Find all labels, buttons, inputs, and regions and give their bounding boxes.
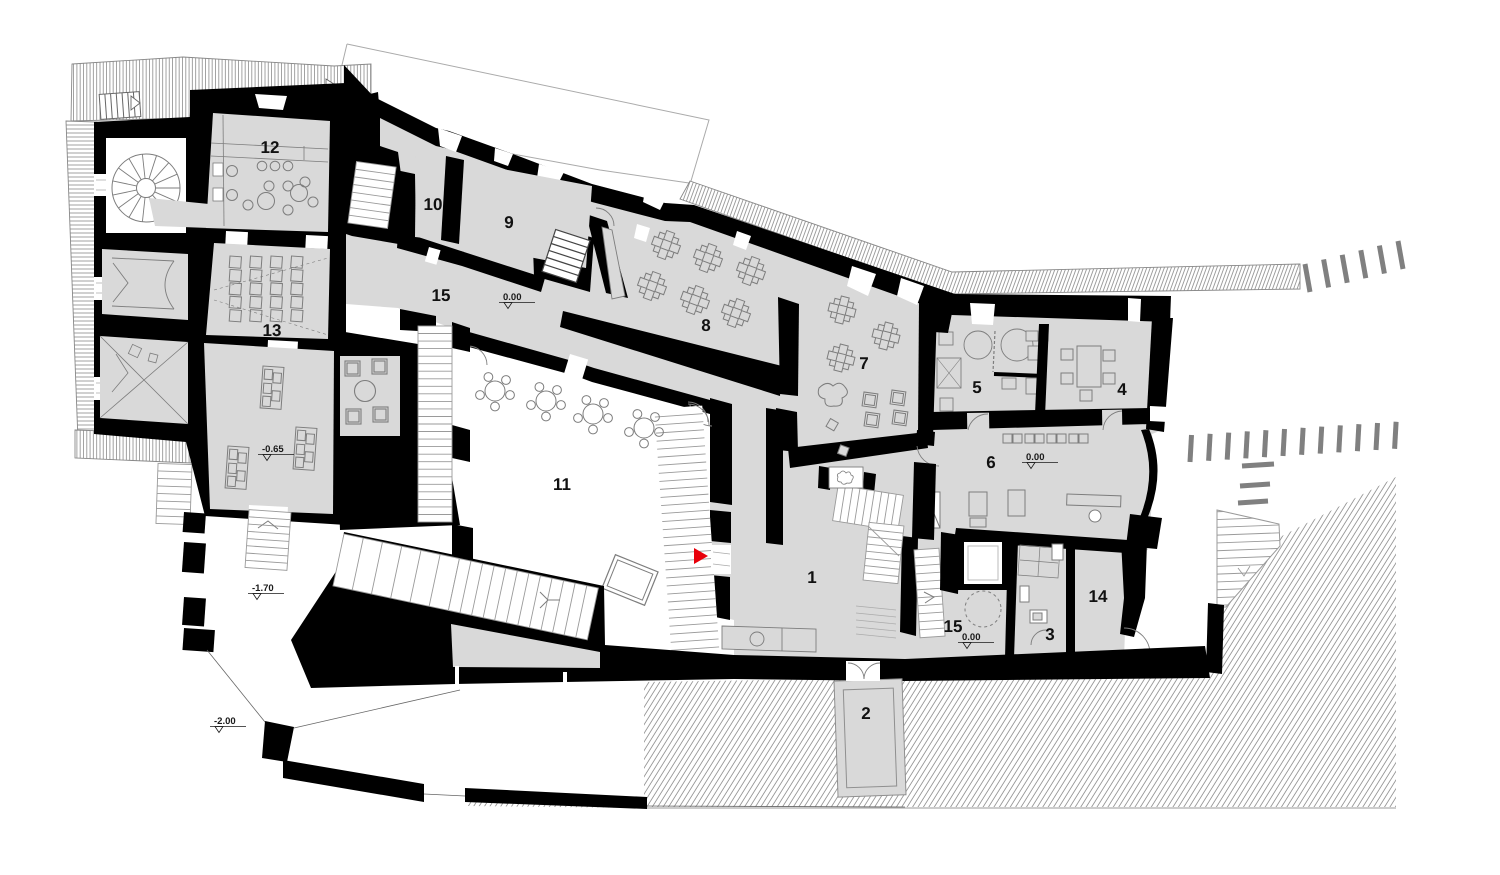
svg-text:-0.65: -0.65 [262,444,284,455]
svg-text:9: 9 [504,213,513,232]
svg-text:4: 4 [1117,380,1127,399]
svg-text:0.00: 0.00 [1026,452,1045,463]
svg-text:15: 15 [432,286,451,305]
svg-text:1: 1 [807,568,816,587]
svg-text:8: 8 [701,316,710,335]
svg-text:2: 2 [861,704,870,723]
svg-text:0.00: 0.00 [962,632,981,643]
svg-text:7: 7 [859,354,868,373]
svg-text:14: 14 [1089,587,1108,606]
svg-text:6: 6 [986,453,995,472]
svg-text:11: 11 [553,475,571,494]
svg-text:0.00: 0.00 [503,292,522,303]
svg-text:-2.00: -2.00 [214,716,236,727]
svg-text:5: 5 [972,378,981,397]
svg-text:12: 12 [261,138,280,157]
svg-text:-1.70: -1.70 [252,583,274,594]
svg-text:10: 10 [424,195,443,214]
svg-text:3: 3 [1045,625,1054,644]
svg-text:15: 15 [944,617,963,636]
svg-text:13: 13 [263,321,282,340]
